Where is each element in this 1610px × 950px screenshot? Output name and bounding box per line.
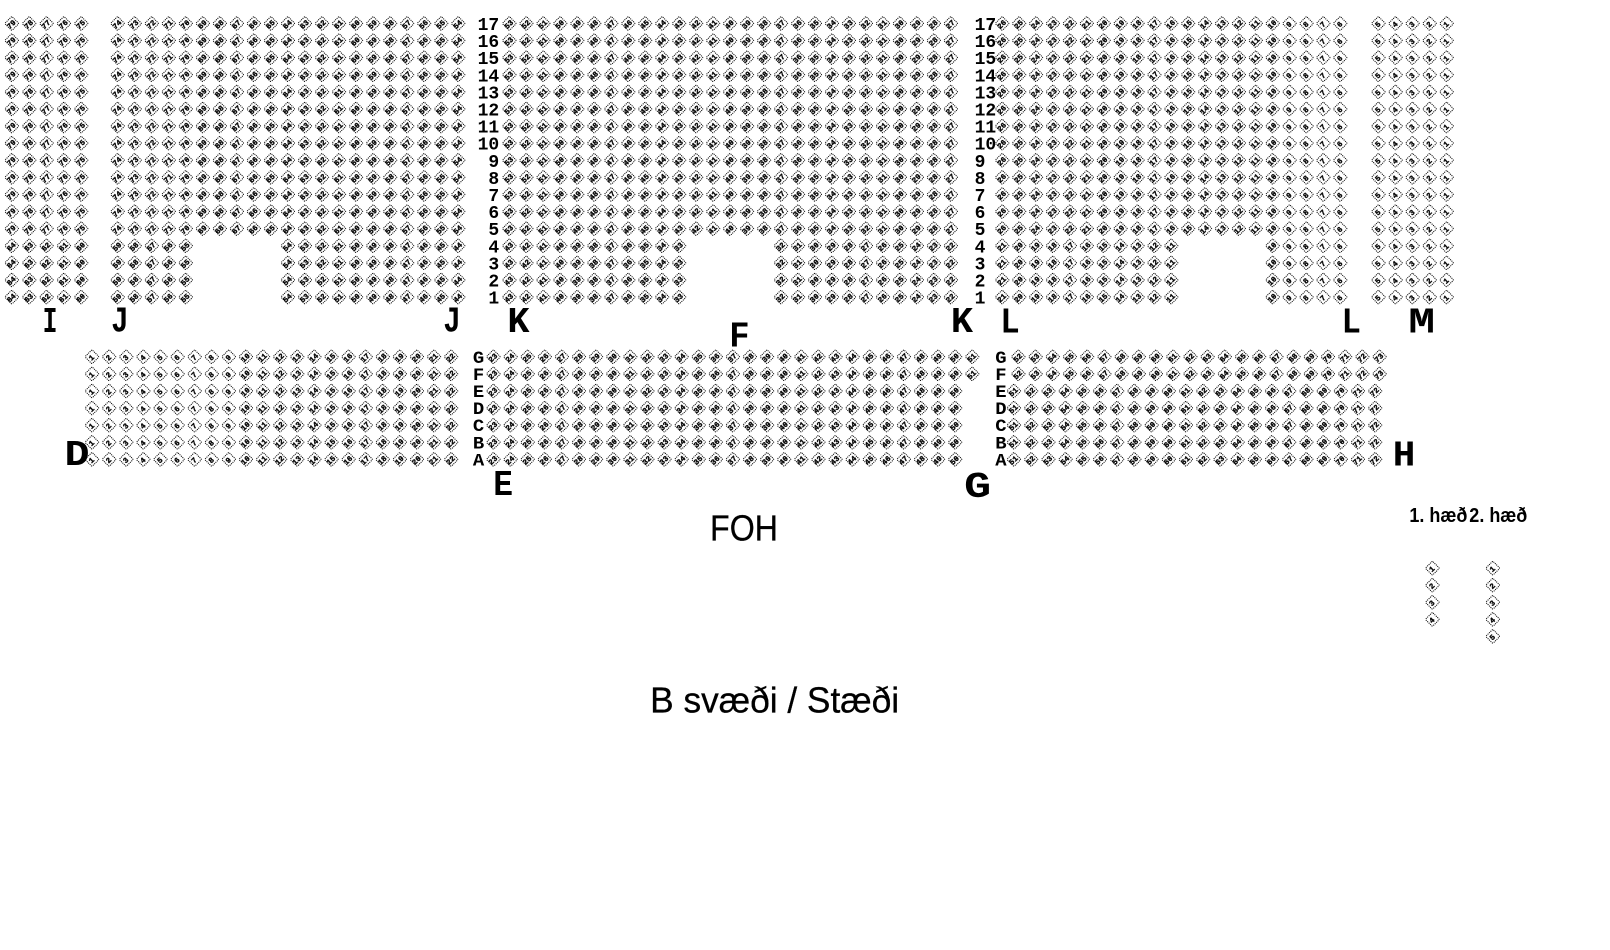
- svg-text:K: K: [951, 302, 973, 342]
- svg-text:M: M: [1408, 303, 1435, 344]
- svg-text:H: H: [1393, 436, 1416, 477]
- svg-text:L: L: [1000, 303, 1019, 344]
- svg-text:I: I: [43, 303, 58, 344]
- svg-text:J: J: [443, 302, 460, 343]
- svg-text:J: J: [111, 302, 128, 343]
- svg-text:D: D: [64, 435, 89, 476]
- svg-text:A: A: [473, 451, 485, 471]
- svg-text:L: L: [1341, 303, 1360, 344]
- svg-text:1. hæð: 1. hæð: [1409, 505, 1467, 527]
- svg-text:2. hæð: 2. hæð: [1469, 505, 1527, 527]
- svg-text:1: 1: [488, 290, 499, 310]
- svg-text:B svæði / Stæði: B svæði / Stæði: [650, 680, 899, 720]
- svg-text:K: K: [507, 302, 529, 342]
- svg-text:FOH: FOH: [710, 509, 778, 549]
- svg-text:E: E: [493, 466, 513, 507]
- svg-text:G: G: [964, 468, 991, 509]
- svg-text:1: 1: [975, 290, 986, 310]
- svg-text:A: A: [995, 451, 1007, 471]
